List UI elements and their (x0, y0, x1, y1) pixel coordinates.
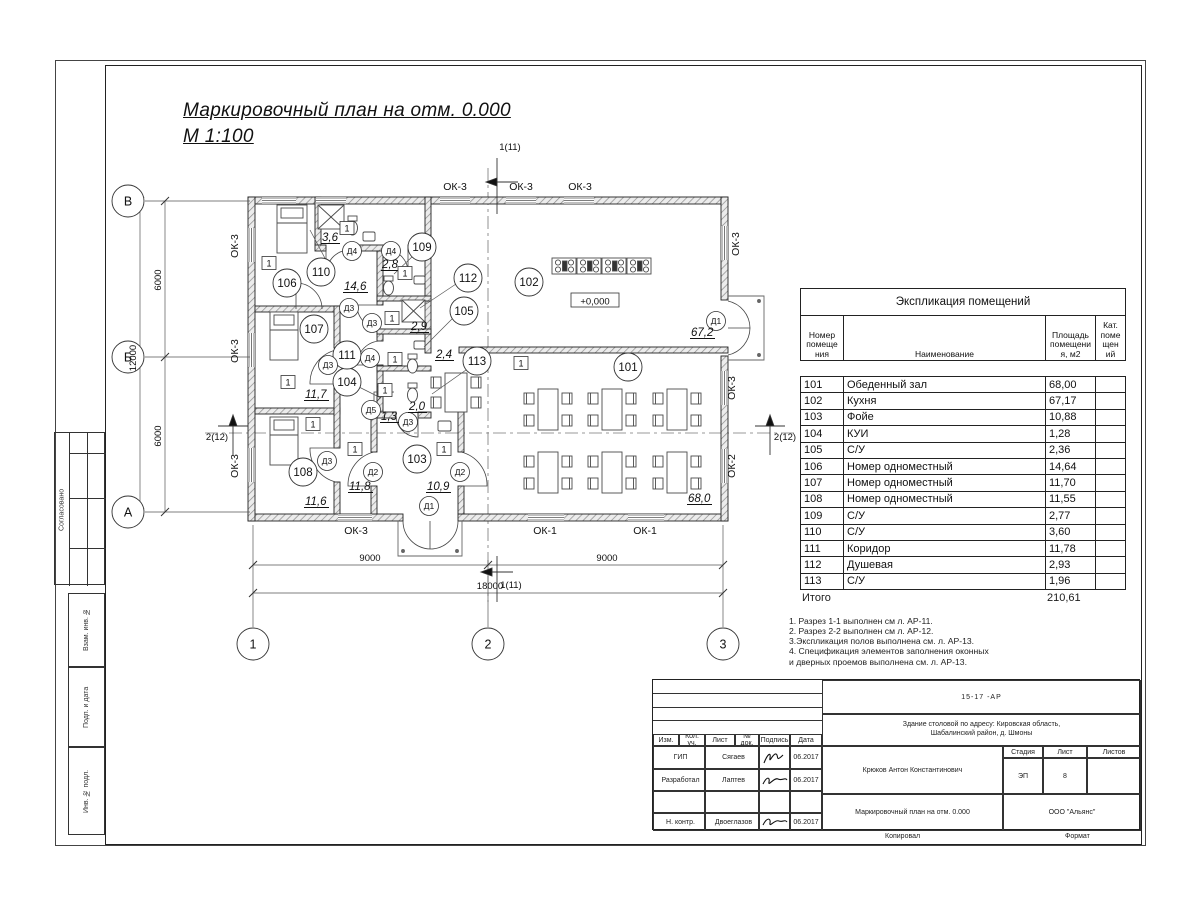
area-label: 11,8 (349, 481, 371, 493)
bed-108 (270, 417, 298, 465)
door-tag-label: Д4 (365, 353, 376, 363)
dining-table (602, 452, 622, 493)
bed-106 (277, 205, 307, 253)
room-number-label: 111 (338, 350, 355, 362)
room-number-label: 113 (468, 356, 486, 368)
chair (626, 393, 636, 404)
elevation-label: +0,000 (580, 297, 609, 308)
section-label: 2(12) (206, 432, 228, 443)
role-1-signature (759, 769, 790, 791)
area-label: 11,6 (305, 496, 327, 508)
door-tag-label: Д3 (323, 360, 334, 370)
room-name: Коридор (844, 540, 1046, 556)
area-label: 2,4 (435, 349, 452, 361)
room-number: 113 (801, 573, 844, 589)
room-schedule-rows: 101Обеденный зал68,00102Кухня67,17103Фой… (800, 376, 1126, 590)
area-label: 3,6 (322, 232, 339, 244)
area-label: 1,3 (381, 411, 398, 423)
room-area: 1,96 (1046, 573, 1096, 589)
chair (588, 478, 598, 489)
col-header-number: Номерпомещения (801, 316, 844, 361)
dining-table (667, 452, 687, 493)
role-3-date: 06.2017 (790, 813, 822, 831)
window-label: ОК-3 (443, 181, 467, 193)
col-header-area: Площадьпомещения, м2 (1046, 316, 1096, 361)
signature-icon (761, 749, 789, 767)
object-line1: Здание столовой по адресу: Кировская обл… (903, 721, 1061, 730)
room-cat (1096, 442, 1126, 458)
col-header-name: Наименование (844, 316, 1046, 361)
axis-label: А (124, 506, 133, 520)
dining-table (602, 389, 622, 430)
col-list: Лист (705, 734, 735, 746)
dining-table (445, 373, 467, 412)
room-number-label: 109 (412, 242, 431, 254)
window-label: ОК-3 (229, 339, 241, 363)
room-number: 111 (801, 540, 844, 556)
total-label: Итого (800, 592, 1047, 604)
drawing-sheet: Согласовано Взам. инв. № Подп. и дата Ин… (0, 0, 1200, 900)
unit-tag-label: 1 (518, 359, 523, 369)
room-name: С/У (844, 442, 1046, 458)
chair (562, 478, 572, 489)
dimension-label: 18000 (477, 581, 503, 592)
role-3: Н. контр. (653, 813, 705, 831)
object-line2: Шабалинский район, д. Шмоны (931, 730, 1033, 739)
unit-tag-label: 1 (266, 259, 271, 269)
dining-table (667, 389, 687, 430)
unit-tag-label: 1 (352, 445, 357, 455)
role-3-signature (759, 813, 790, 831)
col-podpis: Подпись (759, 734, 790, 746)
window-label: ОК-3 (509, 181, 533, 193)
unit-tag-label: 1 (344, 224, 349, 234)
col-ndok: № док. (735, 734, 759, 746)
room-area: 3,60 (1046, 524, 1096, 540)
room-name: С/У (844, 524, 1046, 540)
window-label: ОК-3 (730, 232, 742, 256)
window-label: ОК-3 (229, 454, 241, 478)
role-2 (653, 791, 705, 813)
note-line: 2. Разрез 2-2 выполнен см л. АР-12. (789, 626, 1119, 636)
sheet-label: Лист (1043, 746, 1087, 758)
doc-title: Маркировочный план на отм. 0.000 (822, 794, 1003, 831)
room-number: 106 (801, 458, 844, 474)
area-label: 11,7 (305, 389, 327, 401)
note-line: 1. Разрез 1-1 выполнен см л. АР-11. (789, 616, 1119, 626)
role-0-signature (759, 746, 790, 769)
room-area: 11,78 (1046, 540, 1096, 556)
chair (691, 478, 701, 489)
room-number-label: 112 (459, 273, 477, 285)
note-line: 4. Спецификация элементов заполнения око… (789, 646, 1119, 656)
door-tag-label: Д3 (367, 318, 378, 328)
room-area: 1,28 (1046, 426, 1096, 442)
chair (588, 456, 598, 467)
room-number-label: 106 (277, 278, 296, 290)
door-tag-label: Д1 (424, 501, 435, 511)
room-number-label: 103 (407, 454, 426, 466)
room-number: 110 (801, 524, 844, 540)
room-cat (1096, 508, 1126, 524)
chair (588, 415, 598, 426)
room-number: 107 (801, 475, 844, 491)
col-data: Дата (790, 734, 822, 746)
room-cat (1096, 393, 1126, 409)
area-label: 68,0 (688, 493, 711, 505)
chair (562, 415, 572, 426)
window-label: ОК-3 (344, 525, 368, 537)
dimension-label: 6000 (153, 269, 164, 290)
room-schedule-total: Итого 210,61 (800, 590, 1126, 605)
format-label: Формат (1065, 833, 1090, 840)
chair (562, 393, 572, 404)
total-value: 210,61 (1047, 592, 1081, 604)
window-label: ОК-3 (229, 234, 241, 258)
role-1: Разработал (653, 769, 705, 791)
room-cat (1096, 540, 1126, 556)
col-kol-uch: Кол. уч. (679, 734, 705, 746)
bed-107 (270, 312, 298, 360)
room-number-label: 105 (454, 306, 473, 318)
room-cat (1096, 524, 1126, 540)
room-cat (1096, 475, 1126, 491)
room-number: 104 (801, 426, 844, 442)
room-name: С/У (844, 508, 1046, 524)
room-area: 67,17 (1046, 393, 1096, 409)
door-tag-label: Д3 (344, 303, 355, 313)
chair (653, 415, 663, 426)
room-number: 105 (801, 442, 844, 458)
room-area: 10,88 (1046, 409, 1096, 425)
chair (524, 415, 534, 426)
room-cat (1096, 426, 1126, 442)
project-object: Здание столовой по адресу: Кировская обл… (822, 714, 1141, 746)
door-tag-label: Д3 (322, 456, 333, 466)
role-1-name: Лаптев (705, 769, 759, 791)
axis-label: 2 (485, 638, 492, 652)
role-0-name: Сягаев (705, 746, 759, 769)
room-name: С/У (844, 573, 1046, 589)
room-area: 2,77 (1046, 508, 1096, 524)
window-label: ОК-1 (633, 525, 657, 537)
chair (471, 377, 481, 388)
chair (524, 456, 534, 467)
note-line: и дверных проемов выполнена см. л. АР-13… (789, 657, 1119, 667)
kitchen-equipment (552, 258, 651, 274)
room-cat (1096, 573, 1126, 589)
role-3-name: Двоеглазов (705, 813, 759, 831)
chair (431, 377, 441, 388)
room-cat (1096, 409, 1126, 425)
room-area: 68,00 (1046, 377, 1096, 393)
room-schedule-title: Экспликация помещений (801, 289, 1126, 316)
area-label: 14,6 (344, 281, 367, 293)
room-schedule: Экспликация помещений Номерпомещения Наи… (800, 288, 1126, 605)
room-number: 102 (801, 393, 844, 409)
room-number: 109 (801, 508, 844, 524)
room-number-label: 108 (293, 467, 312, 479)
chair (653, 456, 663, 467)
room-number: 108 (801, 491, 844, 507)
dimension-label: 9000 (359, 553, 380, 564)
area-label: 2,0 (408, 401, 426, 413)
chair (653, 478, 663, 489)
unit-tag-label: 1 (310, 420, 315, 430)
door-tag-label: Д4 (386, 246, 397, 256)
room-name: Фойе (844, 409, 1046, 425)
dimension-label: 9000 (596, 553, 617, 564)
unit-tag-label: 1 (392, 355, 397, 365)
notes: 1. Разрез 1-1 выполнен см л. АР-11.2. Ра… (789, 616, 1119, 667)
chair (691, 393, 701, 404)
dimension-label: 6000 (153, 425, 164, 446)
door-tag-label: Д4 (347, 246, 358, 256)
room-name: Обеденный зал (844, 377, 1046, 393)
sheets-value (1087, 758, 1141, 794)
window-label: ОК-3 (568, 181, 592, 193)
room-cat (1096, 491, 1126, 507)
chair (691, 415, 701, 426)
room-cat (1096, 458, 1126, 474)
role-0: ГИП (653, 746, 705, 769)
unit-tag-label: 1 (441, 445, 446, 455)
room-number: 112 (801, 557, 844, 573)
door-tag-label: Д2 (455, 467, 466, 477)
room-number-label: 110 (312, 267, 330, 279)
room-number-label: 102 (519, 277, 538, 289)
room-number-label: 107 (304, 324, 323, 336)
room-name: Номер одноместный (844, 458, 1046, 474)
door-tag-label: Д1 (711, 316, 722, 326)
role-2-date (790, 791, 822, 813)
room-area: 14,64 (1046, 458, 1096, 474)
section-label: 1(11) (500, 580, 521, 591)
chair (626, 415, 636, 426)
col-izm: Изм. (653, 734, 679, 746)
kopiroval-label: Копировал (885, 833, 920, 840)
org-name: ООО "Альянс" (1003, 794, 1141, 831)
dining-table (538, 452, 558, 493)
area-label: 10,9 (427, 481, 450, 493)
person-name: Крюков Антон Константинович (822, 746, 1003, 794)
door-tag-label: Д2 (368, 467, 379, 477)
room-name: Номер одноместный (844, 491, 1046, 507)
section-label: 1(11) (499, 142, 520, 153)
section-label: 2(12) (774, 432, 796, 443)
unit-tag-label: 1 (389, 314, 394, 324)
area-label: 67,2 (691, 327, 714, 339)
room-cat (1096, 377, 1126, 393)
axis-label: 3 (720, 638, 727, 652)
chair (626, 478, 636, 489)
signature-icon (761, 771, 789, 789)
axis-label: В (124, 195, 132, 209)
room-area: 2,93 (1046, 557, 1096, 573)
room-cat (1096, 557, 1126, 573)
shower-112 (402, 300, 425, 322)
area-label: 2,8 (381, 259, 399, 271)
axis-label: 1 (250, 638, 257, 652)
door-tag-label: Д3 (403, 417, 414, 427)
stage-label: Стадия (1003, 746, 1043, 758)
sheets-label: Листов (1087, 746, 1141, 758)
col-header-cat: Кат.помещений (1096, 316, 1126, 361)
chair (562, 456, 572, 467)
chair (431, 397, 441, 408)
room-number: 103 (801, 409, 844, 425)
title-block: Изм. Кол. уч. Лист № док. Подпись Дата Г… (652, 679, 1140, 830)
room-number: 101 (801, 377, 844, 393)
chair (691, 456, 701, 467)
chair (471, 397, 481, 408)
door-tag-label: Д5 (366, 405, 377, 415)
note-line: 3.Экспликация полов выполнена см. л. АР-… (789, 636, 1119, 646)
dining-table (538, 389, 558, 430)
room-name: Кухня (844, 393, 1046, 409)
room-area: 11,55 (1046, 491, 1096, 507)
unit-tag-label: 1 (382, 386, 387, 396)
chair (653, 393, 663, 404)
role-0-date: 06.2017 (790, 746, 822, 769)
window-label: ОК-2 (726, 454, 738, 478)
room-name: Номер одноместный (844, 475, 1046, 491)
room-name: КУИ (844, 426, 1046, 442)
sheet-value: 8 (1043, 758, 1087, 794)
role-1-date: 06.2017 (790, 769, 822, 791)
dimension-label: 12000 (128, 345, 139, 371)
project-code: 15-17 -АР (822, 680, 1141, 714)
room-area: 2,36 (1046, 442, 1096, 458)
signature-icon (761, 814, 789, 830)
chair (588, 393, 598, 404)
chair (626, 456, 636, 467)
role-2-name (705, 791, 759, 813)
unit-tag-label: 1 (285, 378, 290, 388)
unit-tag-label: 1 (402, 269, 407, 279)
room-number-label: 101 (618, 362, 637, 374)
room-name: Душевая (844, 557, 1046, 573)
role-2-signature (759, 791, 790, 813)
area-label: 2,9 (410, 321, 428, 333)
window-label: ОК-1 (533, 525, 557, 537)
window-label: ОК-3 (726, 376, 738, 400)
chair (524, 478, 534, 489)
chair (524, 393, 534, 404)
room-number-label: 104 (337, 377, 357, 389)
room-area: 11,70 (1046, 475, 1096, 491)
stage-value: ЭП (1003, 758, 1043, 794)
